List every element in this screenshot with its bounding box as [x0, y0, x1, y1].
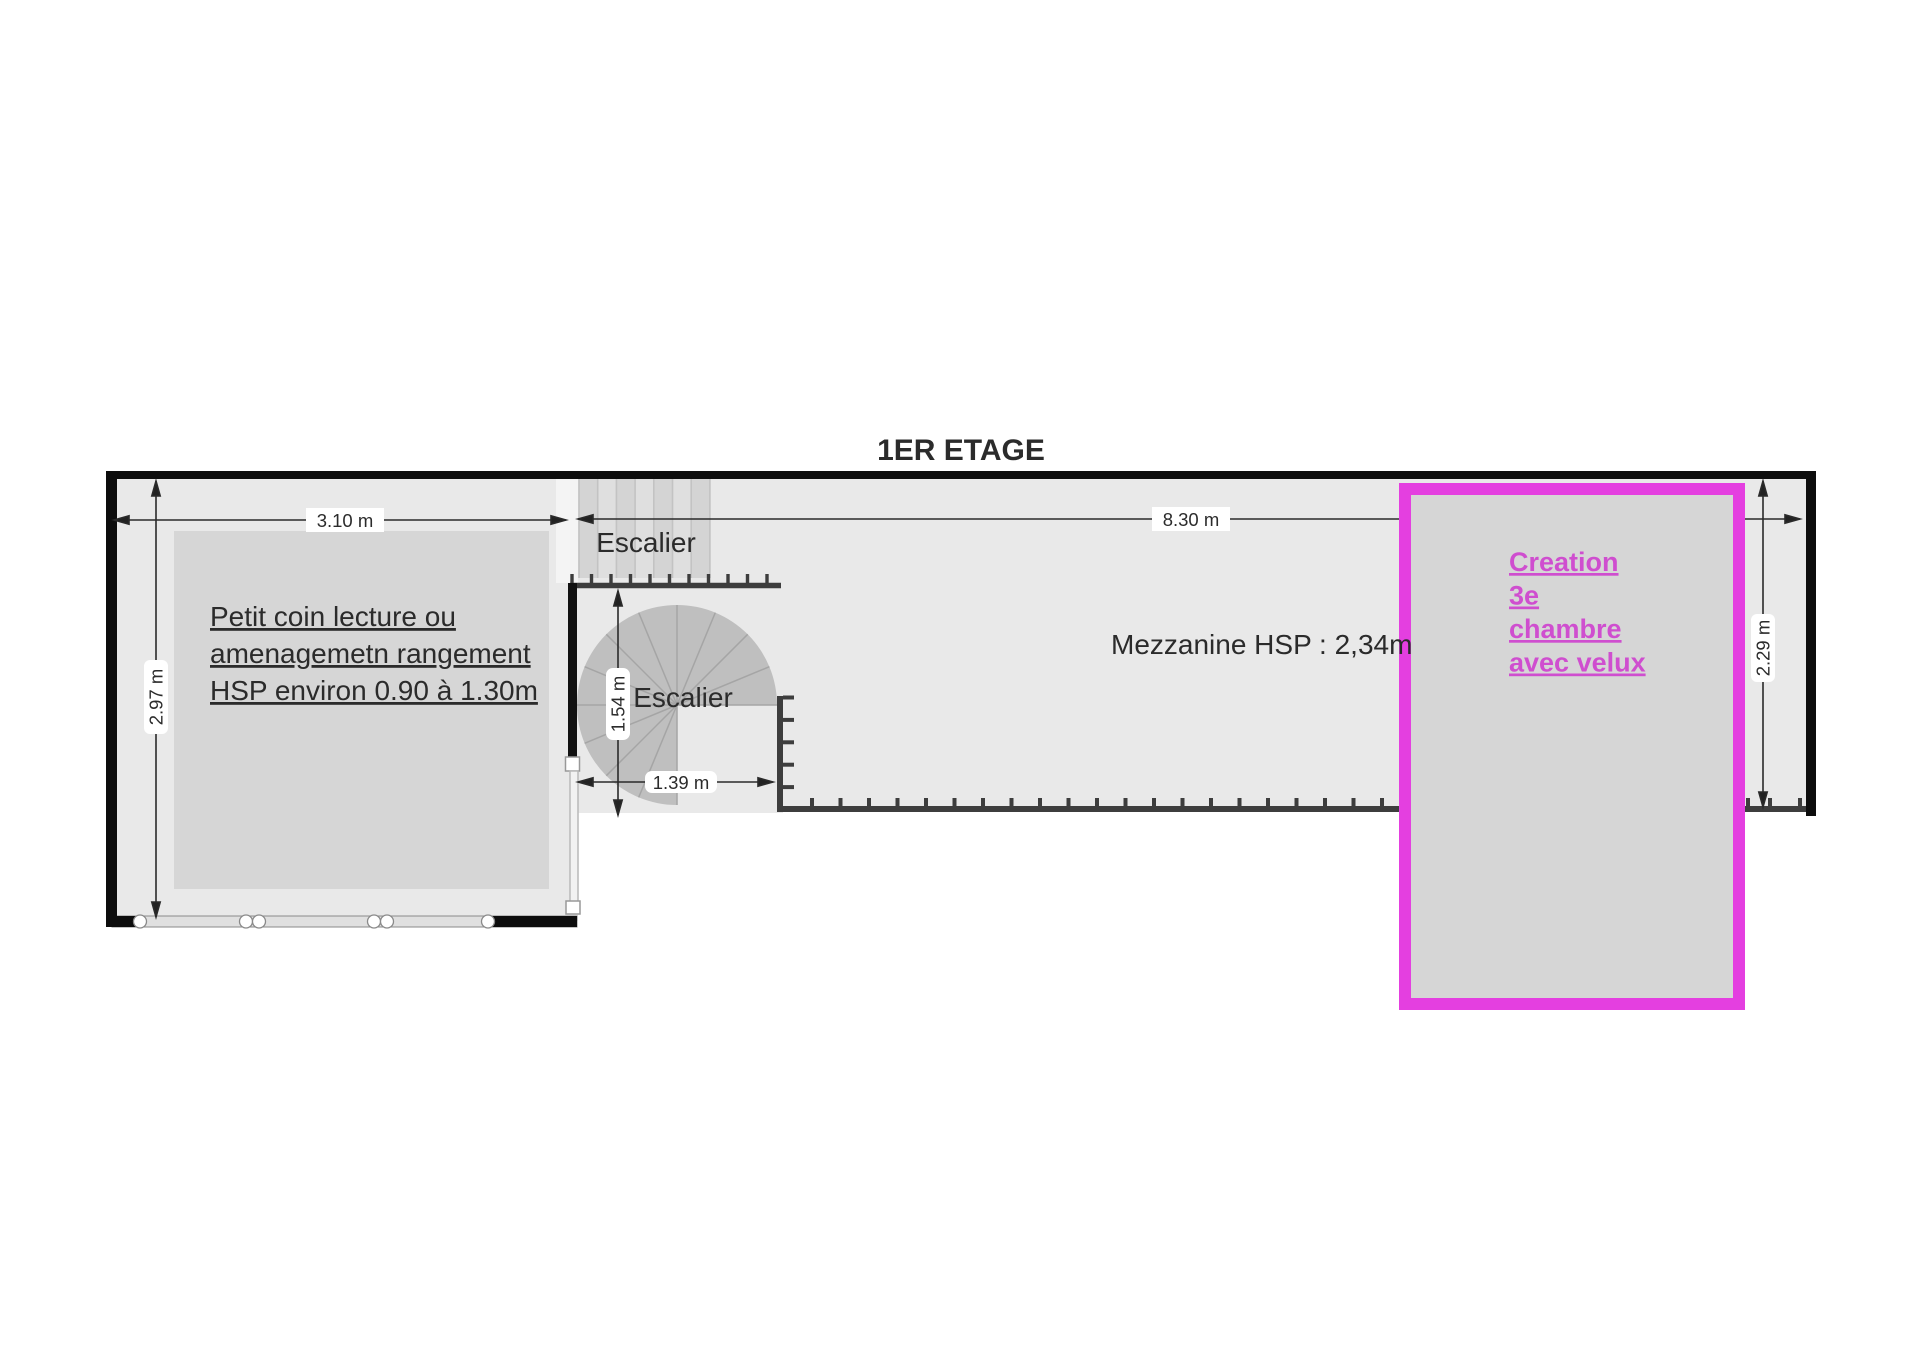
svg-text:3.10 m: 3.10 m [317, 510, 374, 531]
svg-text:3e: 3e [1509, 581, 1539, 611]
svg-text:8.30 m: 8.30 m [1163, 509, 1220, 530]
svg-text:HSP environ 0.90 à 1.30m: HSP environ 0.90 à 1.30m [210, 675, 538, 706]
svg-text:1ER ETAGE: 1ER ETAGE [877, 434, 1045, 467]
svg-text:1.39 m: 1.39 m [653, 772, 710, 793]
svg-text:1.54 m: 1.54 m [608, 676, 629, 733]
svg-text:Escalier: Escalier [633, 682, 733, 713]
svg-text:2.29 m: 2.29 m [1753, 620, 1774, 677]
svg-text:Petit coin lecture ou: Petit coin lecture ou [210, 601, 456, 632]
svg-text:Mezzanine HSP : 2,34m: Mezzanine HSP : 2,34m [1111, 629, 1412, 660]
svg-text:Escalier: Escalier [596, 527, 696, 558]
svg-text:Creation: Creation [1509, 547, 1619, 577]
svg-text:amenagemetn rangement: amenagemetn rangement [210, 638, 531, 669]
svg-text:2.97 m: 2.97 m [146, 669, 167, 726]
svg-text:chambre: chambre [1509, 614, 1622, 644]
svg-text:avec velux: avec velux [1509, 648, 1646, 678]
